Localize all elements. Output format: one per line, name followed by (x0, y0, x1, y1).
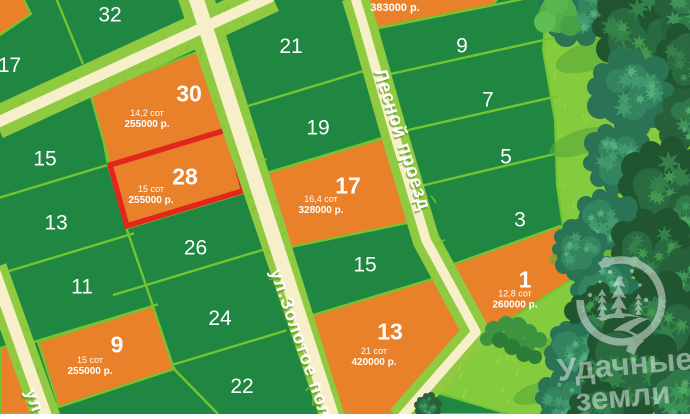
svg-text:328000 р.: 328000 р. (298, 205, 343, 216)
svg-text:21: 21 (279, 35, 302, 58)
svg-text:255000 р.: 255000 р. (128, 195, 173, 206)
svg-text:7: 7 (482, 89, 494, 112)
svg-text:19: 19 (306, 117, 329, 140)
svg-text:383000 р.: 383000 р. (370, 2, 420, 14)
svg-text:5: 5 (500, 146, 512, 169)
svg-text:9: 9 (456, 35, 468, 58)
svg-text:420000 р.: 420000 р. (351, 357, 396, 368)
svg-text:9: 9 (111, 331, 124, 357)
svg-text:11: 11 (71, 276, 93, 299)
svg-text:260000 р.: 260000 р. (492, 300, 537, 311)
svg-text:30: 30 (176, 80, 202, 106)
svg-text:32: 32 (98, 4, 121, 27)
svg-text:15 сот: 15 сот (138, 184, 164, 194)
svg-text:22: 22 (230, 375, 253, 398)
svg-text:17: 17 (335, 172, 361, 198)
svg-text:28: 28 (172, 163, 198, 189)
svg-text:255000 р.: 255000 р. (67, 366, 112, 377)
svg-text:17: 17 (0, 54, 21, 77)
svg-text:3: 3 (514, 209, 526, 232)
svg-text:255000 р.: 255000 р. (124, 119, 169, 130)
svg-text:16,4 сот: 16,4 сот (304, 194, 338, 204)
svg-text:26: 26 (184, 237, 207, 260)
svg-text:14,2 сот: 14,2 сот (130, 108, 164, 118)
svg-text:12,8 сот: 12,8 сот (498, 289, 532, 299)
svg-text:15: 15 (33, 148, 56, 171)
svg-text:24: 24 (208, 307, 232, 330)
svg-text:15: 15 (353, 254, 376, 277)
svg-text:13: 13 (377, 318, 403, 344)
svg-text:15 сот: 15 сот (77, 355, 103, 365)
svg-text:13: 13 (44, 212, 67, 235)
svg-text:21 сот: 21 сот (361, 346, 387, 356)
